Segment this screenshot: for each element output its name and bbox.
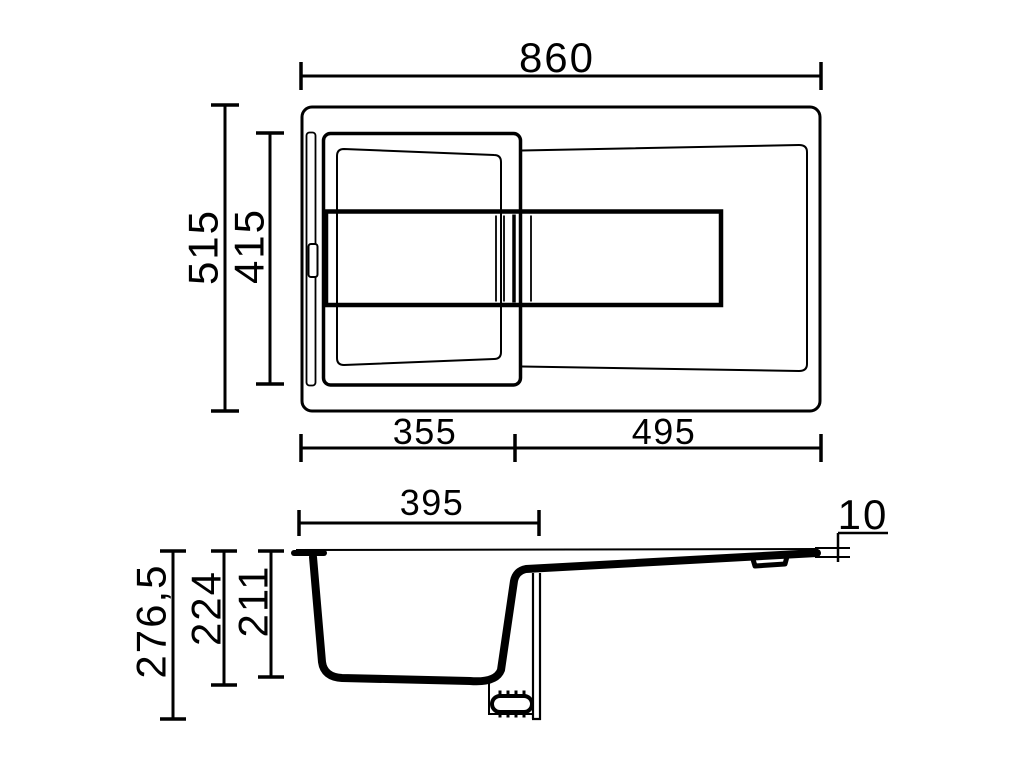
dim-label-inner-depth: 415 [226, 208, 273, 284]
section-rim-line [296, 549, 818, 550]
dim-label-bowl-width: 355 [393, 411, 458, 452]
sink-technical-drawing: 860 515 415 [0, 0, 1024, 768]
dim-label-bowl-depth-inner: 211 [230, 565, 277, 638]
dim-label-overall-height: 276,5 [128, 563, 175, 678]
dim-label-overall-depth: 515 [180, 209, 227, 285]
dim-label-bowl-depth-outer: 224 [183, 570, 230, 646]
dim-label-drainer-width: 495 [632, 411, 697, 452]
dim-label-bowl-top-width: 395 [400, 482, 465, 523]
dim-label-edge-height: 10 [838, 491, 889, 538]
handle-notch [309, 244, 318, 277]
dim-label-overall-width: 860 [519, 34, 595, 81]
